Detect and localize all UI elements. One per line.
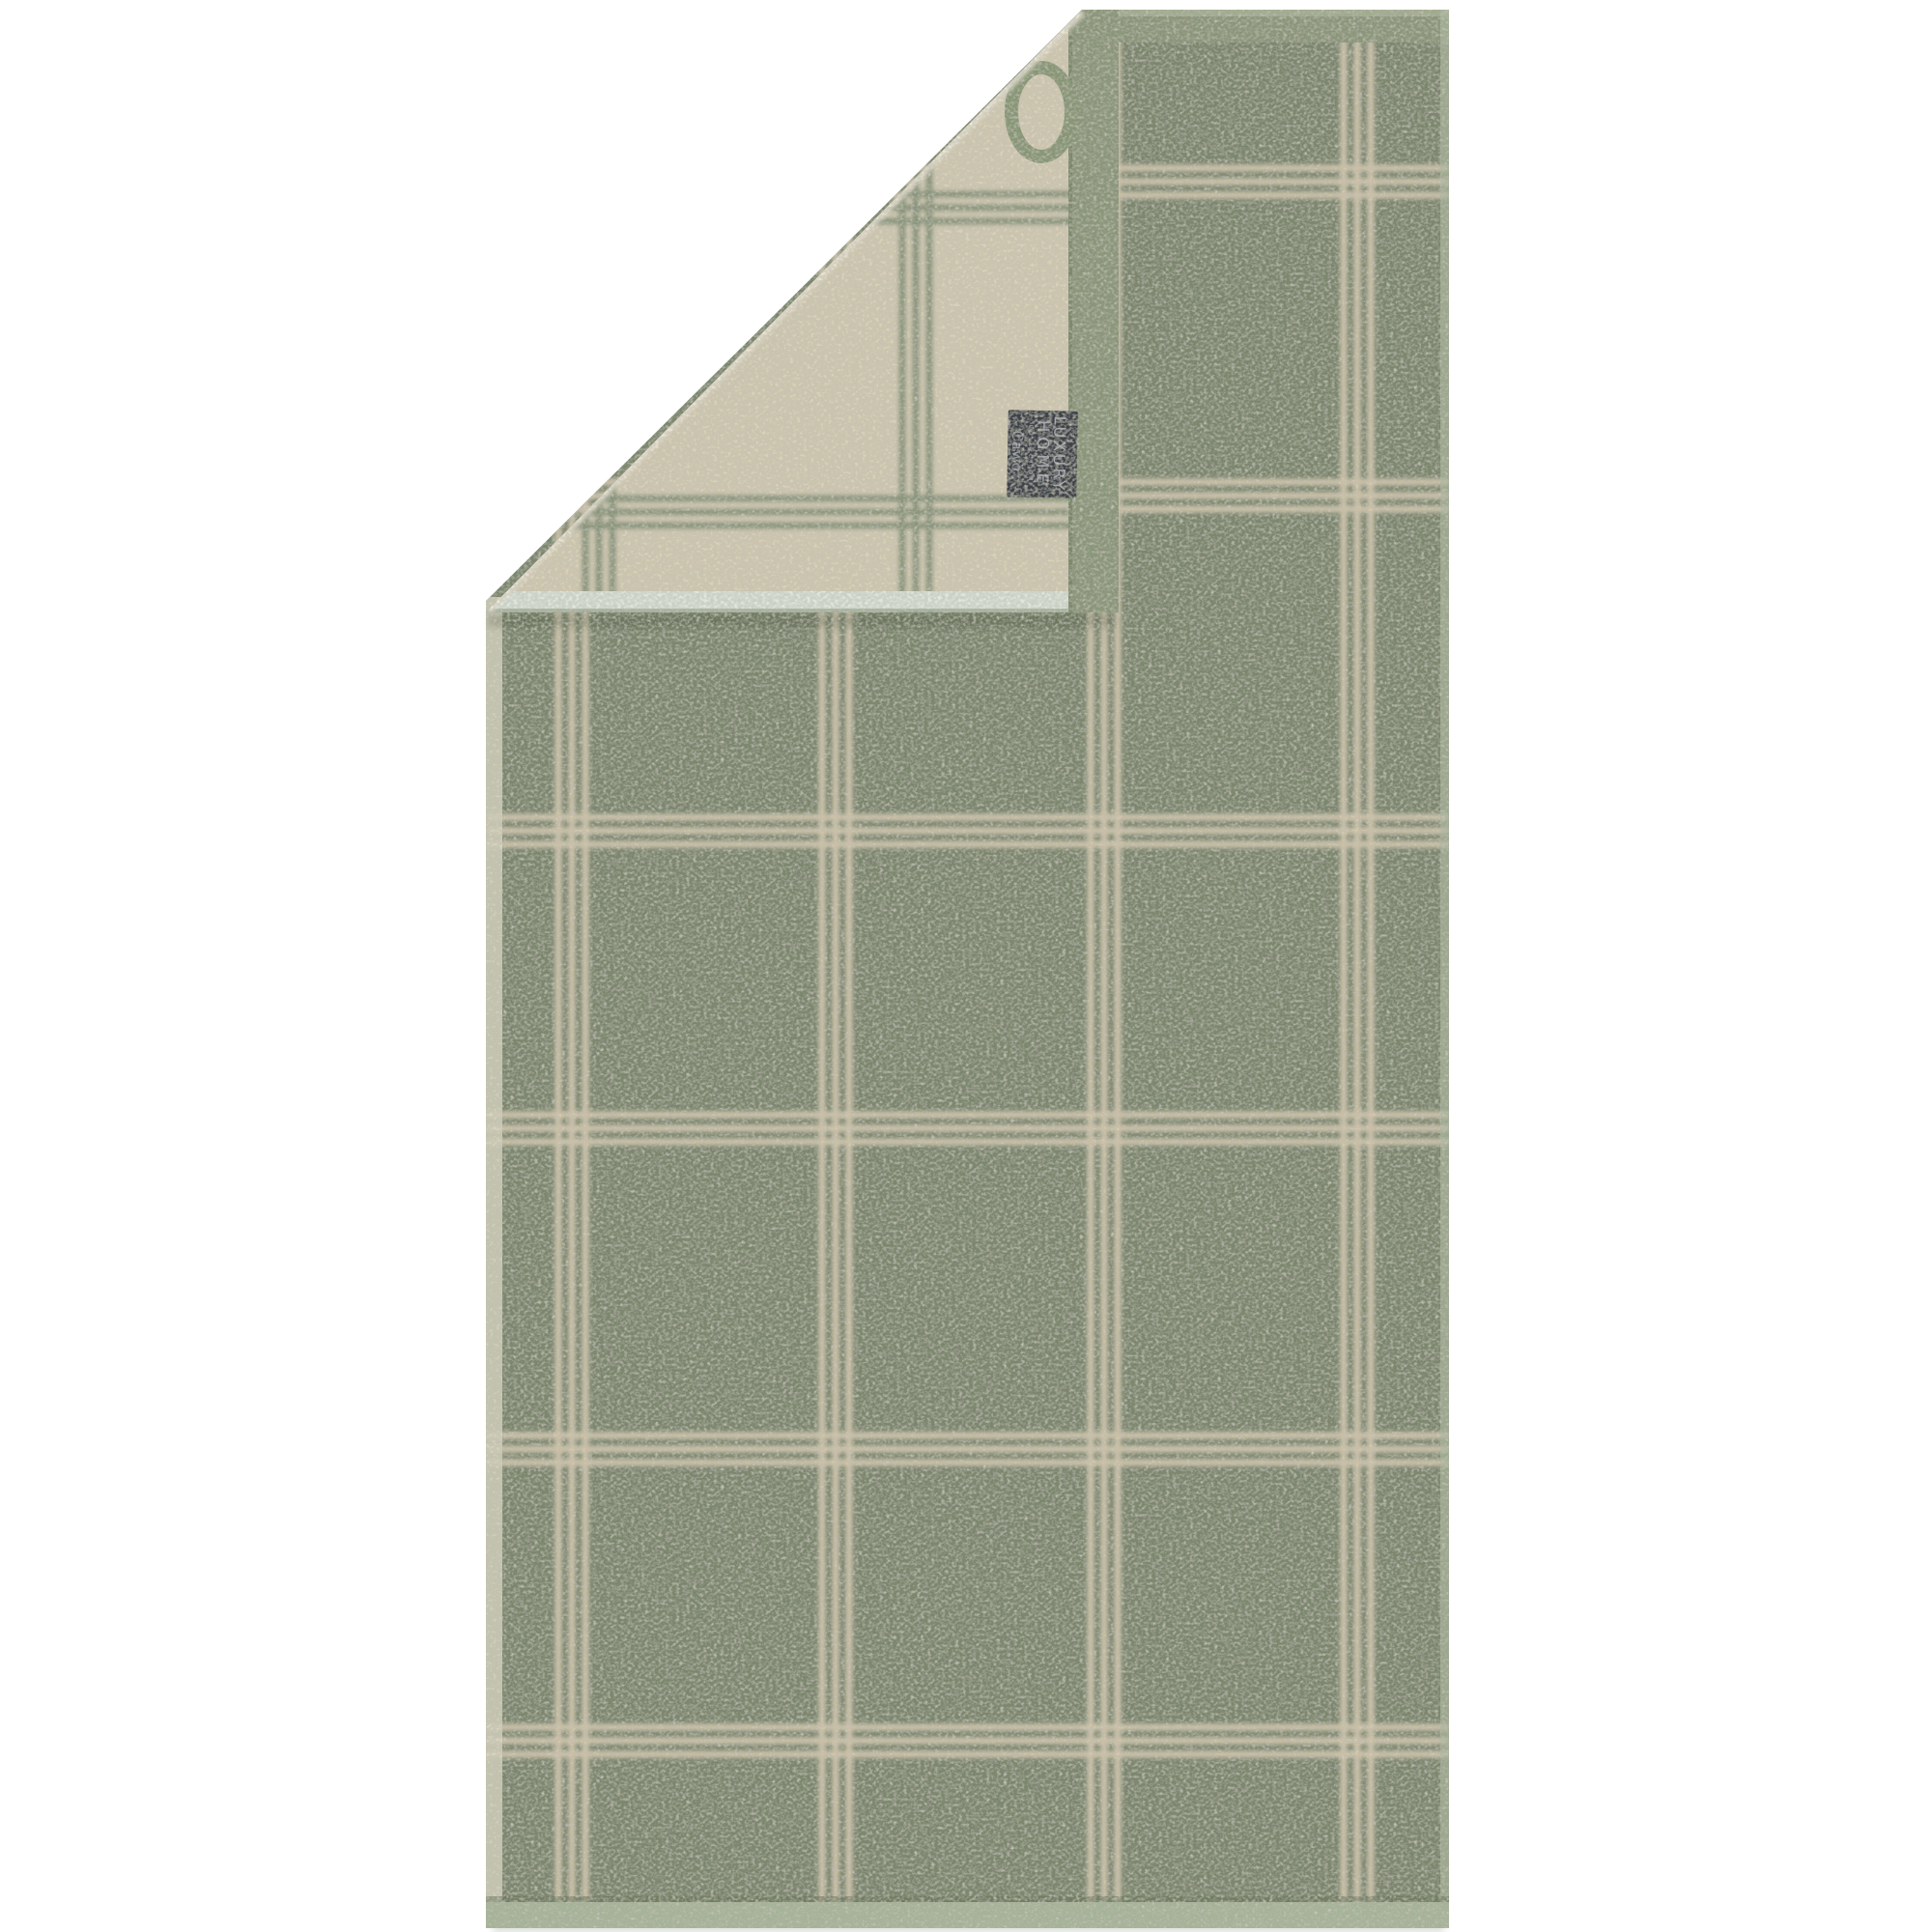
pattern-line-horizontal (486, 1738, 1449, 1745)
bottom-hem-edge (486, 1896, 1449, 1902)
tag-brand: Cawö (1009, 430, 1027, 471)
pattern-line-vertical (569, 10, 576, 1928)
product-photo-towel: LUXURY HOME COLLECTION Cawö ® (0, 0, 1932, 1932)
care-tag: LUXURY HOME COLLECTION Cawö ® (1007, 410, 1078, 497)
flap-selvage-band-edge (486, 609, 1119, 612)
pattern-line-horizontal (486, 1433, 1449, 1439)
pattern-line-horizontal (486, 1446, 1449, 1453)
bottom-hem (486, 1902, 1449, 1928)
pattern-line-horizontal (486, 1724, 1449, 1731)
pattern-line-horizontal (486, 1751, 1449, 1758)
pattern-line-vertical (1354, 10, 1361, 1928)
pattern-line-vertical (582, 10, 589, 1928)
pattern-line-horizontal (486, 841, 1449, 848)
top-hem-highlight (486, 10, 1449, 16)
tag-line-collection: COLLECTION (1026, 425, 1034, 483)
pattern-line-horizontal (486, 828, 1449, 835)
left-selvage (486, 597, 502, 1928)
pattern-line-vertical (1341, 10, 1348, 1928)
tag-line-home: HOME (1033, 420, 1052, 488)
pattern-line-horizontal (486, 814, 1449, 821)
towel-illustration: LUXURY HOME COLLECTION Cawö ® (0, 0, 1932, 1932)
fold-shadow (488, 614, 1116, 627)
pattern-line-vertical (1368, 10, 1375, 1928)
right-selvage (1440, 10, 1449, 1928)
towel: LUXURY HOME COLLECTION Cawö ® (486, 10, 1449, 1928)
pattern-line-horizontal (486, 1460, 1449, 1466)
pattern-line-horizontal (486, 1139, 1449, 1146)
pattern-line-vertical (555, 10, 562, 1928)
flap-selvage-band (486, 591, 1119, 611)
pattern-line-horizontal (486, 1125, 1449, 1132)
pattern-line-horizontal (486, 1112, 1449, 1119)
tag-registered-mark: ® (1010, 473, 1018, 480)
